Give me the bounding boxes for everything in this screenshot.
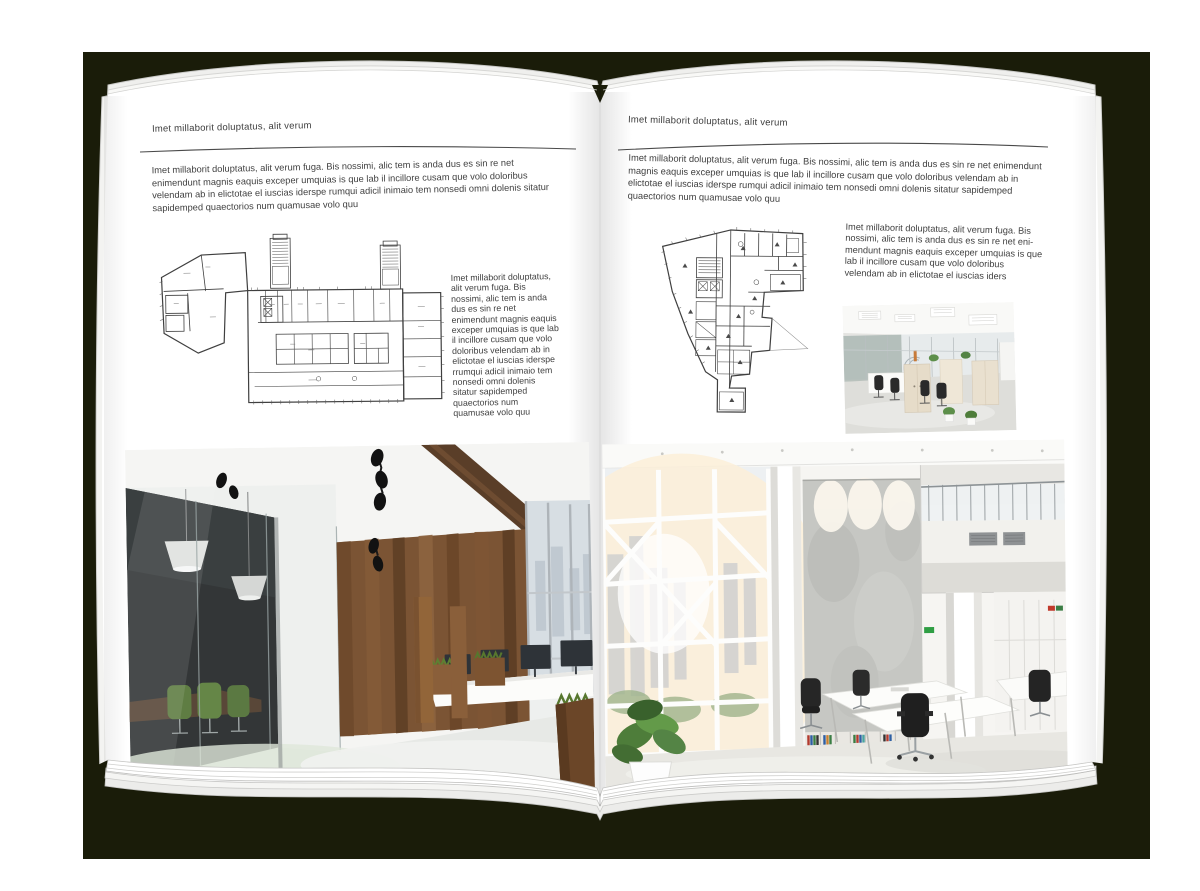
floor-plan-right — [651, 221, 815, 422]
office-photo-right — [602, 440, 1068, 795]
right-header-rule — [616, 138, 1050, 152]
magazine-mockup-canvas: { "left_page": { "header": "Imet millabo… — [0, 0, 1200, 891]
right-page-intro: Imet millaborit doluptatus, alit verum f… — [628, 152, 1043, 211]
office-photo-small — [843, 302, 1017, 434]
right-page-header: Imet millaborit doluptatus, alit verum — [628, 114, 788, 128]
right-page: Imet millaborit doluptatus, alit verum I… — [0, 0, 1200, 891]
right-page-side-text: Imet millaborit doluptatus, alit verum f… — [844, 222, 1045, 284]
